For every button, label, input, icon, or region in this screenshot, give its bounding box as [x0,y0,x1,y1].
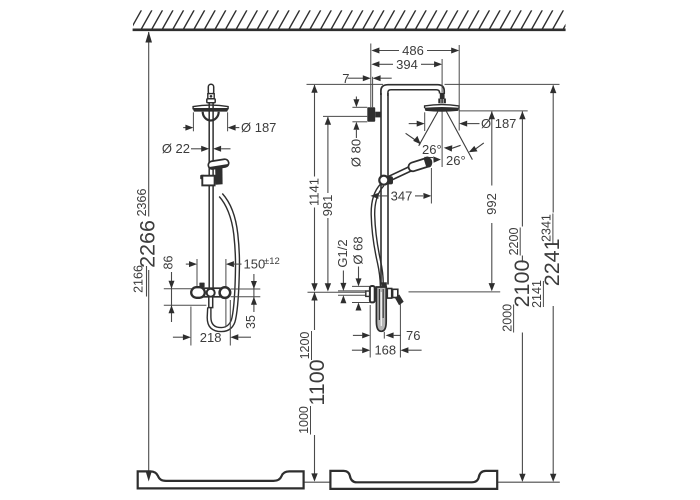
svg-text:2266: 2266 [136,220,160,268]
svg-text:Ø 80: Ø 80 [349,139,364,167]
svg-text:394: 394 [396,57,418,72]
svg-text:26°: 26° [422,142,442,157]
svg-text:86: 86 [161,256,175,270]
svg-text:35: 35 [244,315,258,329]
svg-text:76: 76 [406,328,420,343]
svg-text:2241: 2241 [540,238,564,286]
svg-text:2166: 2166 [132,265,146,293]
svg-text:150: 150 [244,257,266,272]
svg-text:G1/2: G1/2 [335,239,350,267]
svg-text:2341: 2341 [540,214,554,242]
svg-text:486: 486 [402,43,424,58]
svg-text:Ø 187: Ø 187 [481,116,516,131]
svg-text:±12: ±12 [264,256,280,267]
svg-text:992: 992 [484,193,499,215]
svg-text:26°: 26° [446,153,466,168]
svg-text:218: 218 [200,330,222,345]
svg-text:168: 168 [374,343,396,358]
svg-text:2000: 2000 [501,304,515,332]
svg-text:1200: 1200 [298,332,312,360]
svg-text:1100: 1100 [305,359,329,405]
svg-text:347: 347 [391,189,413,204]
svg-text:Ø 187: Ø 187 [241,120,276,135]
svg-text:Ø 68: Ø 68 [350,236,365,264]
svg-text:1000: 1000 [297,406,311,434]
svg-text:2200: 2200 [507,228,521,256]
svg-text:2141: 2141 [530,280,544,308]
svg-text:981: 981 [320,195,335,217]
svg-text:2366: 2366 [135,189,149,217]
svg-text:Ø 22: Ø 22 [162,141,190,156]
